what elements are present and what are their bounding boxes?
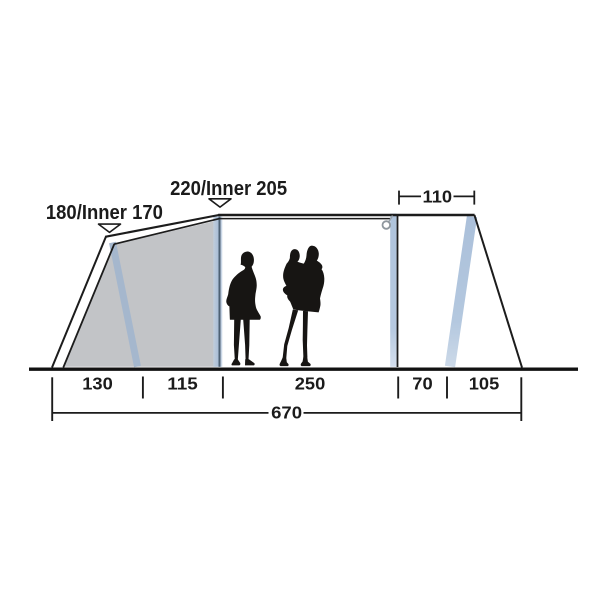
svg-text:70: 70 (412, 374, 433, 394)
svg-text:250: 250 (295, 374, 326, 394)
svg-text:180/Inner 170: 180/Inner 170 (46, 202, 163, 224)
svg-text:115: 115 (167, 374, 198, 394)
svg-text:670: 670 (271, 402, 302, 422)
svg-text:105: 105 (469, 374, 500, 394)
svg-text:110: 110 (423, 186, 453, 206)
svg-text:220/Inner 205: 220/Inner 205 (170, 178, 287, 200)
svg-text:130: 130 (82, 374, 113, 394)
